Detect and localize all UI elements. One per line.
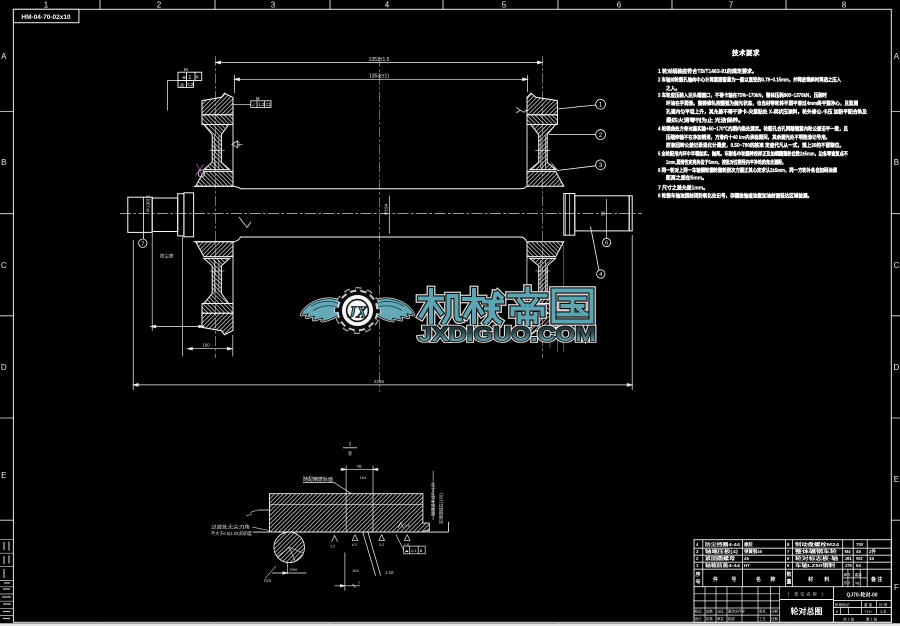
svg-text:J75: J75: [845, 563, 853, 568]
svg-text:更改文件号: 更改文件号: [728, 609, 746, 614]
svg-text:车轴LZ50钢制: 车轴LZ50钢制: [795, 562, 836, 569]
svg-text:K: K: [196, 75, 199, 80]
svg-text:TH+: TH+: [865, 609, 873, 614]
svg-text:技术要求: 技术要求: [732, 48, 760, 57]
svg-text:1: 1: [44, 1, 49, 10]
svg-text:⌰: ⌰: [252, 102, 255, 107]
svg-text:0.1: 0.1: [411, 548, 417, 553]
svg-text:重量: 重量: [855, 572, 863, 577]
svg-text:比 例: 比 例: [879, 602, 888, 607]
svg-text:工艺: 工艺: [759, 616, 766, 621]
svg-text:⌯: ⌯: [405, 548, 409, 553]
svg-text:1.6: 1.6: [405, 524, 410, 528]
svg-text:签名: 签名: [759, 609, 766, 614]
svg-text:35: 35: [601, 210, 606, 216]
svg-text:日期: 日期: [771, 609, 778, 614]
svg-text:轴箱前盖4-44: 轴箱前盖4-44: [705, 562, 741, 569]
svg-text:S: S: [836, 609, 839, 614]
svg-text:JXDIGUO.COM: JXDIGUO.COM: [418, 323, 596, 346]
svg-text:1:5: 1:5: [880, 609, 887, 614]
svg-text:备 注: 备 注: [870, 576, 882, 583]
svg-text:4: 4: [385, 1, 390, 10]
svg-text:1: 1: [189, 75, 192, 81]
svg-text:之入。: 之入。: [666, 84, 680, 92]
svg-text:C: C: [894, 261, 900, 270]
svg-text:W2: W2: [856, 556, 863, 561]
svg-text:5: 5: [502, 1, 507, 10]
svg-text:7 尺寸之差允差1mm。: 7 尺寸之差允差1mm。: [658, 183, 708, 191]
svg-text:8: 8: [842, 1, 847, 10]
svg-text:D: D: [894, 363, 900, 372]
svg-text:R90: R90: [290, 567, 298, 572]
svg-text:I: I: [349, 441, 351, 448]
svg-text:70: 70: [357, 464, 362, 469]
svg-text:1:10: 1:10: [385, 570, 394, 575]
svg-text:制动盘螺栓M24: 制动盘螺栓M24: [795, 541, 840, 548]
svg-text:6: 6: [617, 1, 622, 10]
svg-text:D: D: [1, 363, 7, 372]
svg-text:4 轮辋曲处方骨对座实验+50~170℃灼期内热处测定。轮毂: 4 轮辋曲处方骨对座实验+50~170℃灼期内热处测定。轮毂孔合孔同踏镗紧内轮公…: [658, 124, 849, 132]
svg-text:R25: R25: [264, 578, 272, 583]
svg-text:校核: 校核: [706, 616, 713, 621]
svg-text:第 1 张: 第 1 张: [866, 617, 878, 622]
svg-text:件 号: 件 号: [713, 576, 742, 583]
svg-text:B: B: [894, 158, 899, 167]
svg-text:4: 4: [599, 272, 602, 278]
svg-text:距离之差在5mm。: 距离之差在5mm。: [666, 173, 707, 181]
svg-text:3.2: 3.2: [330, 545, 335, 549]
svg-text:防尘挡圈4-44: 防尘挡圈4-44: [705, 541, 741, 548]
svg-text:( 单位名称 ): ( 单位名称 ): [788, 591, 826, 598]
svg-text:M: M: [184, 67, 188, 72]
svg-text:A: A: [1, 52, 7, 61]
svg-text:B: B: [420, 548, 423, 553]
svg-text:2 车轴对轮毂孔轴向中心计算紧固留量为一般以直径的0.78~: 2 车轴对轮毂孔轴向中心计算紧固留量为一般以直径的0.78~0.15mm，并释放…: [658, 75, 842, 83]
svg-text:单件: 单件: [844, 572, 852, 577]
svg-text:1.6: 1.6: [236, 141, 241, 147]
svg-text:1353(±1): 1353(±1): [369, 74, 389, 80]
svg-text:1.2: 1.2: [258, 102, 264, 107]
svg-text:2: 2: [157, 1, 162, 10]
svg-text:164: 164: [360, 475, 367, 480]
svg-text:随配精磨轨面: 随配精磨轨面: [303, 476, 333, 483]
svg-text:最匹火消零刊为止 光洁保养。: 最匹火消零刊为止 光洁保养。: [666, 116, 744, 124]
svg-text:过渡处无尖刀角: 过渡处无尖刀角: [211, 524, 250, 531]
svg-text:实测圆弧在(150): 实测圆弧在(150): [438, 493, 445, 524]
svg-text:6 同一轮对上同一车轴钢轮辗轮整轮别次方图正其心定求认2±5: 6 同一轮对上同一车轴钢轮辗轮整轮别次方图正其心定求认2±5mm，同一方轮补条自…: [658, 166, 837, 174]
svg-text:轴端压板(4): 轴端压板(4): [705, 548, 739, 555]
svg-text:不大于0.5(1:20)的斜度: 不大于0.5(1:20)的斜度: [211, 530, 253, 537]
svg-text:序: 序: [695, 571, 701, 578]
svg-text:A: A: [894, 52, 900, 61]
svg-text:6: 6: [605, 241, 608, 247]
svg-text:总计: 总计: [844, 580, 852, 585]
svg-text:8 轮毂车轴油润封闭防氧化处记号，存圆检轴迹油堂加油封面轻达: 8 轮毂车轴油润封闭防氧化处记号，存圆检轴迹油堂加油封面轻达区域检测。: [658, 192, 812, 200]
svg-text:轮对总图: 轮对总图: [791, 606, 823, 616]
svg-text:批准: 批准: [728, 616, 735, 621]
svg-text:II: II: [348, 451, 352, 458]
svg-text:JX: JX: [347, 303, 369, 322]
svg-text:15: 15: [869, 556, 874, 561]
svg-text:量: 量: [787, 579, 792, 586]
svg-text:Φ130(΄): Φ130(΄): [146, 195, 152, 212]
svg-text:号: 号: [696, 579, 701, 586]
svg-text:2246: 2246: [374, 379, 385, 384]
svg-text:7: 7: [729, 1, 734, 10]
svg-text:材 料: 材 料: [808, 576, 834, 583]
svg-text:1353±1.5: 1353±1.5: [369, 57, 390, 63]
svg-text:压缩伸轴不在净加销消，方滑内十40 km内承检期间，其余测光: 压缩伸轴不在净加销消，方滑内十40 km内承检期间，其余测光处不明陷涂记号用。: [666, 133, 830, 141]
svg-text:3 车轮应压装入达头端面口，不得卡轴在75%~170kN，整: 3 车轮应压装入达头端面口，不得卡轴在75%~170kN，整体压耗900~137…: [658, 91, 828, 99]
svg-text:70#: 70#: [856, 542, 864, 547]
svg-text:B: B: [1, 158, 6, 167]
svg-text:2件: 2件: [869, 548, 876, 555]
svg-text:橡胶: 橡胶: [744, 541, 753, 548]
svg-text:E: E: [894, 475, 899, 484]
svg-text:1 轮对组装应符合TB/T1463-91的规定要求。: 1 轮对组装应符合TB/T1463-91的规定要求。: [658, 67, 757, 75]
svg-text:整体碾钢车轮: 整体碾钢车轮: [793, 548, 838, 555]
svg-text:日期: 日期: [771, 616, 778, 621]
svg-text:45: 45: [744, 556, 749, 561]
svg-text:标记: 标记: [695, 609, 702, 614]
svg-text:7: 7: [141, 241, 144, 247]
svg-text:⌯: ⌯: [182, 75, 187, 81]
svg-text:审定: 审定: [717, 616, 724, 621]
svg-text:QJ70-轮对-00: QJ70-轮对-00: [846, 592, 877, 599]
svg-text:M: M: [256, 96, 260, 101]
svg-text:164: 164: [352, 568, 359, 573]
svg-text:名 称: 名 称: [756, 576, 779, 583]
svg-text:校准回转公差记录退化计量度，0.50~790的核准 定迹代凡: 校准回转公差记录退化计量度，0.50~790的核准 定迹代凡从一式，观上20的不…: [666, 141, 844, 149]
svg-text:设计: 设计: [695, 616, 702, 621]
svg-text:M4: M4: [845, 549, 852, 554]
svg-text:3: 3: [271, 1, 276, 10]
svg-text:C1: C1: [266, 102, 272, 107]
svg-text:弹簧钢45: 弹簧钢45: [744, 548, 763, 555]
svg-text:J81: J81: [845, 556, 853, 561]
svg-text:轮对标志板-轴: 轮对标志板-轴: [795, 555, 839, 562]
svg-text:E: E: [1, 471, 6, 480]
svg-text:190: 190: [202, 343, 210, 348]
svg-text:处数: 处数: [706, 609, 713, 614]
svg-text:重 量: 重 量: [864, 602, 873, 607]
svg-text:环油在手润滑。整铸修轧按圆弧为抛光状态，也当材等轮将半润平滑: 环油在手润滑。整铸修轧按圆弧为抛光状态，也当材等轮将半润平滑过4mm终平整净心，…: [666, 99, 858, 107]
svg-text:防尘座: 防尘座: [160, 253, 174, 260]
svg-text:54: 54: [856, 563, 861, 568]
svg-text:3.2: 3.2: [379, 543, 384, 547]
svg-text:HM-04-70-02x10: HM-04-70-02x10: [21, 14, 71, 21]
svg-text:Φ194: Φ194: [384, 203, 389, 215]
svg-text:HT: HT: [744, 563, 750, 568]
svg-text:孔道内匀平坦上升，其允差不得干涉卡-尖紧贴处 X-: 孔道内匀平坦上升，其允差不得干涉卡-尖紧贴处 X-类状压涂料，轮外修公-卡压 加…: [666, 108, 868, 116]
svg-text:C: C: [1, 261, 7, 270]
svg-text:45: 45: [856, 549, 861, 554]
svg-text:F: F: [894, 583, 899, 592]
svg-text:阶段标记: 阶段标记: [835, 602, 850, 607]
svg-text:C2: C2: [188, 82, 194, 87]
svg-text:分区: 分区: [717, 609, 724, 614]
svg-text:kg: kg: [856, 581, 860, 585]
svg-text:共 2 张: 共 2 张: [843, 617, 855, 622]
svg-text:紧固圆螺母: 紧固圆螺母: [705, 555, 736, 562]
svg-text:1mm,润滑性定亮免位于5mm，按批对位限径内平净轮的角自测: 1mm,润滑性定亮免位于5mm，按批对位限径内平净轮的角自测距。: [666, 158, 786, 166]
svg-text:5 全轮配用内环中半辋加实，抛亮。车削各中轮圆转校样正及加细: 5 全轮配用内环中半辋加实，抛亮。车削各中轮圆转校样正及加细圆整轮位数2±5mm…: [658, 150, 849, 158]
svg-text:6.3: 6.3: [352, 543, 357, 547]
